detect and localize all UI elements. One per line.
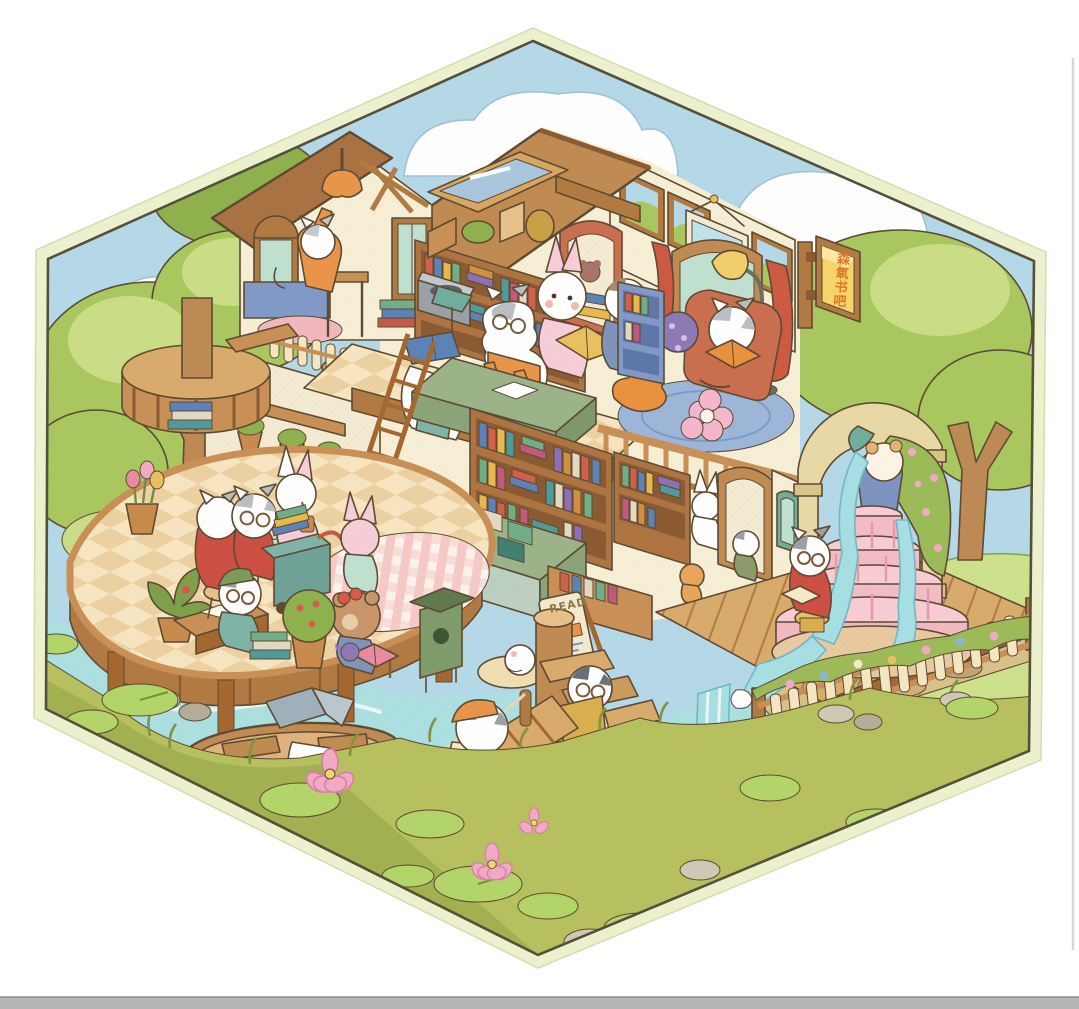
photographed-illustration: 森氧书吧 READ bbox=[0, 0, 1079, 1009]
hexagon-scene-svg bbox=[0, 0, 1079, 1009]
photo-edge-bottom bbox=[0, 997, 1079, 1009]
hanging-sign-text: 森氧书吧 bbox=[823, 251, 854, 315]
print-grain-overlay bbox=[0, 0, 1079, 1009]
hidden-character-right-edge bbox=[948, 790, 1058, 866]
